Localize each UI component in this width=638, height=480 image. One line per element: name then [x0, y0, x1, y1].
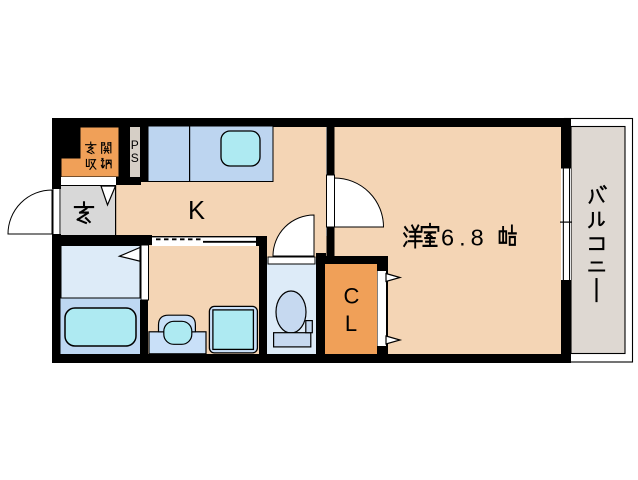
svg-text:S: S [131, 151, 139, 165]
svg-text:P: P [131, 138, 139, 152]
svg-text:C: C [344, 284, 360, 309]
svg-text:K: K [188, 197, 205, 225]
svg-text:6.8: 6.8 [441, 225, 489, 251]
svg-text:L: L [345, 311, 357, 336]
